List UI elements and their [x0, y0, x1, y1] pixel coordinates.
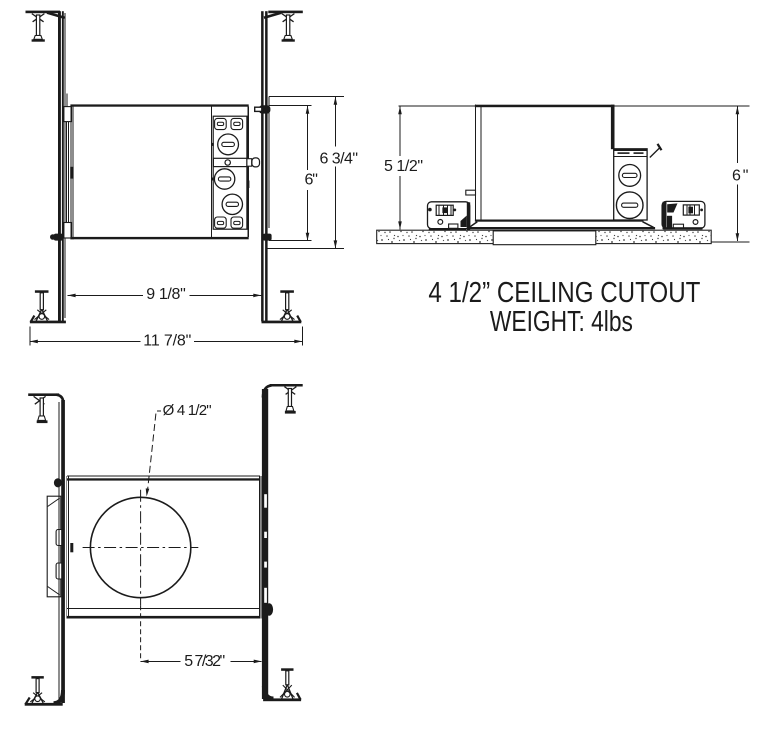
- svg-text:6": 6": [732, 168, 749, 185]
- svg-text:5 7/32": 5 7/32": [184, 653, 225, 670]
- svg-text:11 7/8": 11 7/8": [143, 332, 191, 349]
- svg-text:4 1/2” CEILING CUTOUT: 4 1/2” CEILING CUTOUT: [428, 277, 700, 309]
- svg-text:6 3/4": 6 3/4": [320, 151, 359, 168]
- svg-text:5 1/2": 5 1/2": [384, 158, 423, 175]
- svg-text:Ø 4 1/2": Ø 4 1/2": [163, 402, 212, 419]
- svg-text:WEIGHT: 4lbs: WEIGHT: 4lbs: [490, 306, 633, 338]
- svg-text:9 1/8": 9 1/8": [146, 286, 186, 303]
- svg-text:6": 6": [304, 171, 318, 188]
